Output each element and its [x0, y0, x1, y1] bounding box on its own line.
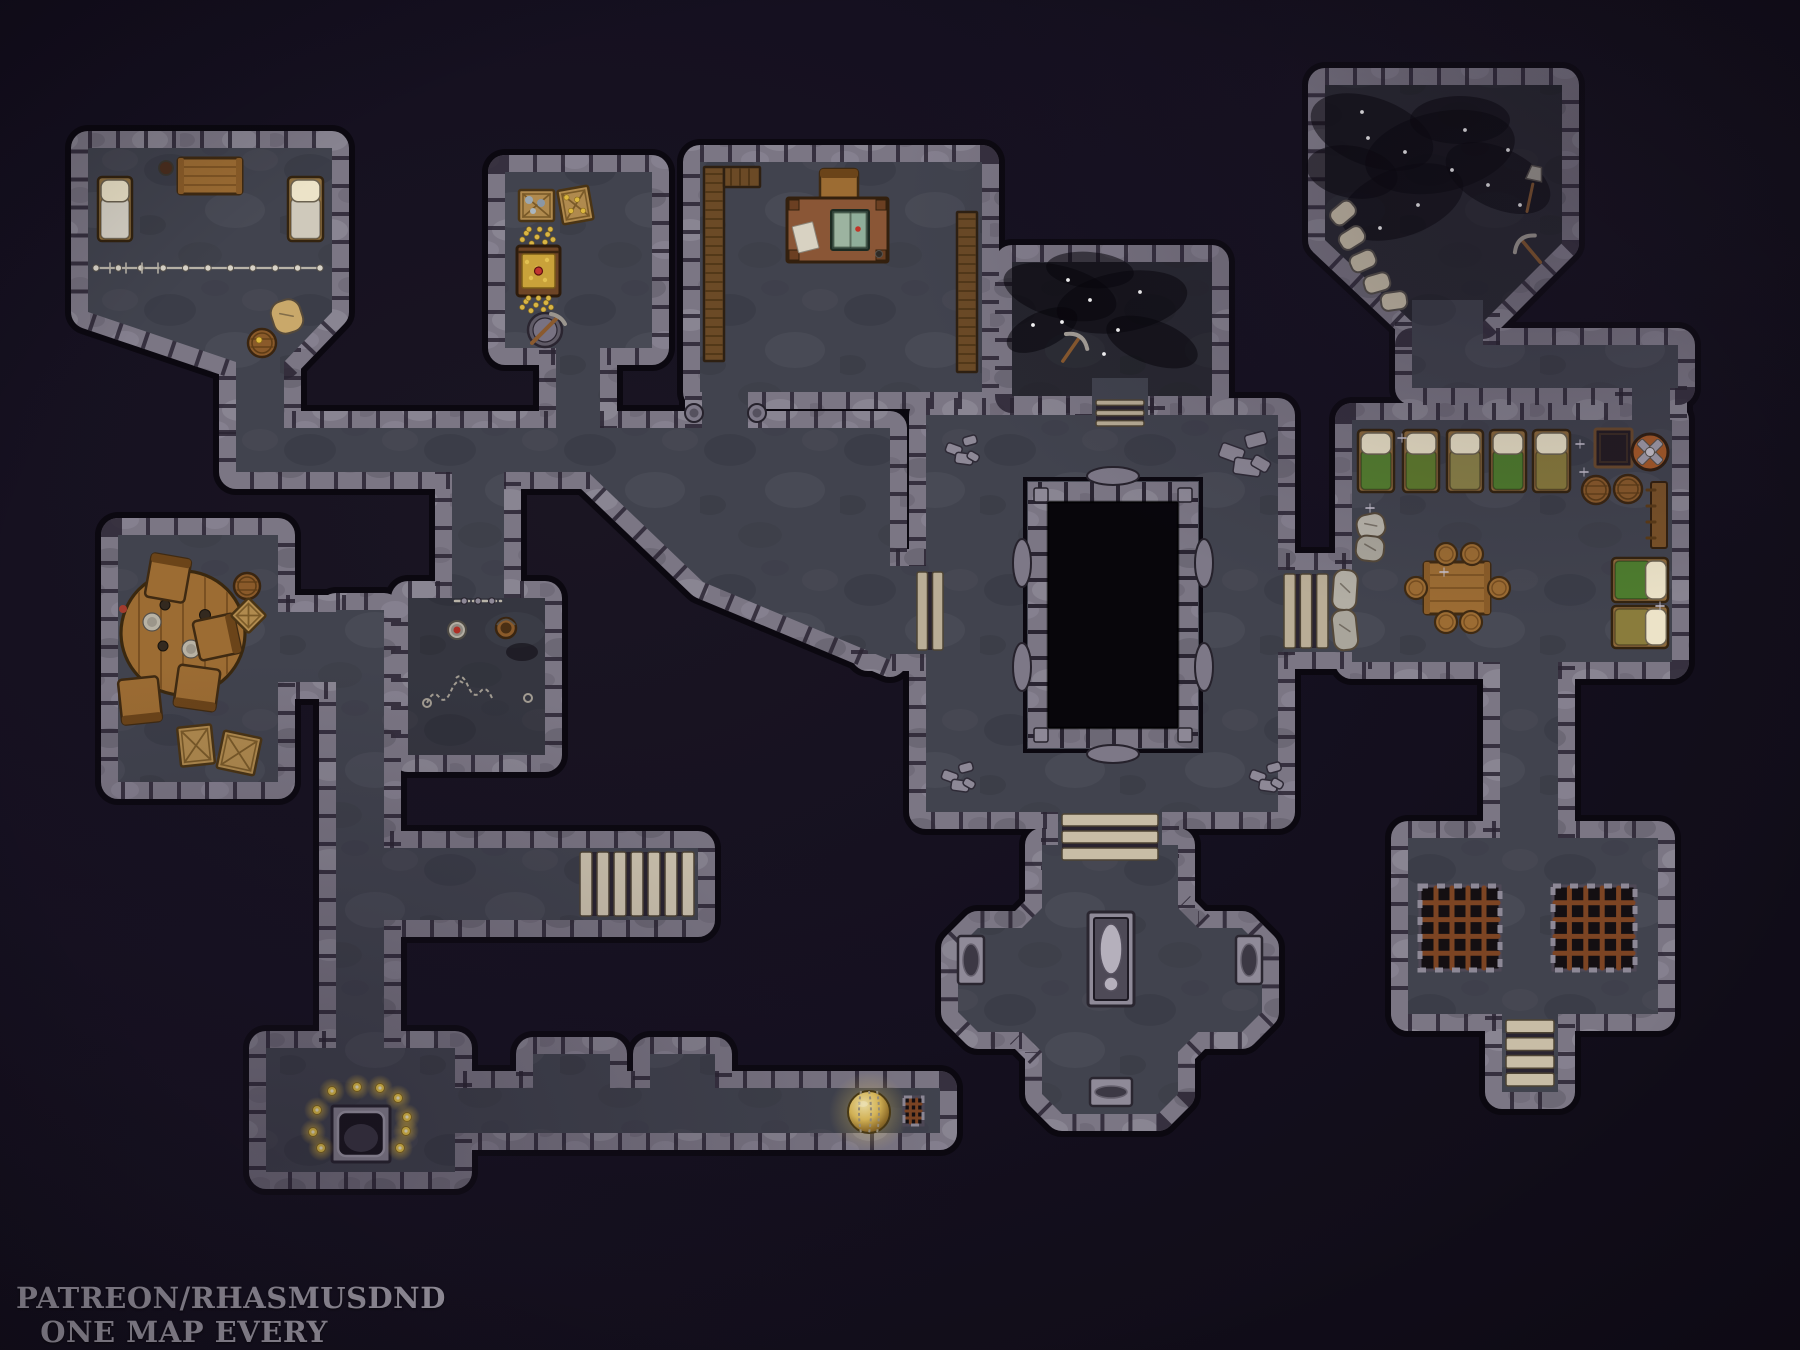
- dark-crate: [1595, 429, 1632, 467]
- floor-battlement-notch-2: [650, 1054, 715, 1100]
- floor-office-door: [702, 372, 748, 452]
- bed: [1612, 606, 1668, 648]
- bed: [1403, 430, 1439, 492]
- bed: [98, 177, 132, 241]
- floor-battlement-notch-1: [533, 1054, 610, 1100]
- bed: [1533, 430, 1570, 492]
- stool: [1461, 543, 1483, 565]
- barrel: [234, 573, 260, 599]
- stool: [1435, 543, 1457, 565]
- floor-prison-corridor: [1500, 640, 1558, 860]
- stain: [506, 643, 538, 661]
- weapon-rack: [1647, 482, 1667, 548]
- shelf: [724, 167, 760, 187]
- barrel: [248, 329, 276, 357]
- crate: [519, 190, 554, 221]
- credit-line1: PATREON/RHASMUSDND: [16, 1281, 352, 1315]
- chain-gate: [455, 598, 501, 604]
- floor-left-vertical-corridor: [336, 610, 384, 1072]
- chest: [517, 246, 560, 296]
- bed: [1612, 558, 1668, 602]
- bed: [1358, 430, 1394, 492]
- ritual-pit: [1013, 467, 1213, 763]
- gargoyle-ornament: [748, 404, 766, 422]
- bed: [1447, 430, 1483, 492]
- credit-line2: ONE MAP EVERY DAY: [16, 1315, 352, 1350]
- stool: [1405, 577, 1427, 599]
- map-canvas: [0, 0, 1800, 1350]
- bed: [1490, 430, 1526, 492]
- chair: [144, 553, 191, 603]
- sarcophagus: [1088, 912, 1134, 1006]
- altar: [1236, 936, 1262, 984]
- floor-rat-stub: [452, 450, 504, 620]
- bed: [288, 177, 323, 241]
- credit-text: PATREON/RHASMUSDND ONE MAP EVERY DAY: [16, 1281, 352, 1350]
- iron-grate: [1553, 886, 1635, 970]
- crate: [557, 186, 593, 225]
- table: [178, 158, 242, 194]
- gargoyle-ornament: [685, 404, 703, 422]
- iron-grate: [1420, 886, 1500, 970]
- chair: [173, 664, 220, 711]
- iron-grate: [904, 1097, 923, 1125]
- chained-orb: [829, 1072, 909, 1152]
- altar: [1090, 1078, 1132, 1106]
- stool: [1435, 611, 1457, 633]
- floor-treasure-stub: [556, 330, 600, 452]
- table: [1424, 562, 1490, 614]
- shelf: [957, 212, 977, 372]
- sack: [1355, 535, 1385, 563]
- food-bowl: [448, 621, 466, 639]
- barrel: [1582, 476, 1610, 504]
- crate: [216, 730, 261, 775]
- dungeon-map: PATREON/RHASMUSDND ONE MAP EVERY DAY: [0, 0, 1800, 1350]
- barrel: [1614, 475, 1642, 503]
- round-shield: [1632, 434, 1668, 470]
- plate: [159, 161, 173, 175]
- sack: [1331, 609, 1359, 651]
- crate: [177, 724, 215, 766]
- chair: [118, 676, 162, 725]
- bucket: [496, 618, 516, 638]
- altar: [958, 936, 984, 984]
- stool: [1488, 577, 1510, 599]
- stone-well: [332, 1106, 390, 1162]
- sack: [1332, 569, 1359, 611]
- stool: [1460, 611, 1482, 633]
- shelf: [704, 167, 724, 361]
- desk: [787, 198, 888, 262]
